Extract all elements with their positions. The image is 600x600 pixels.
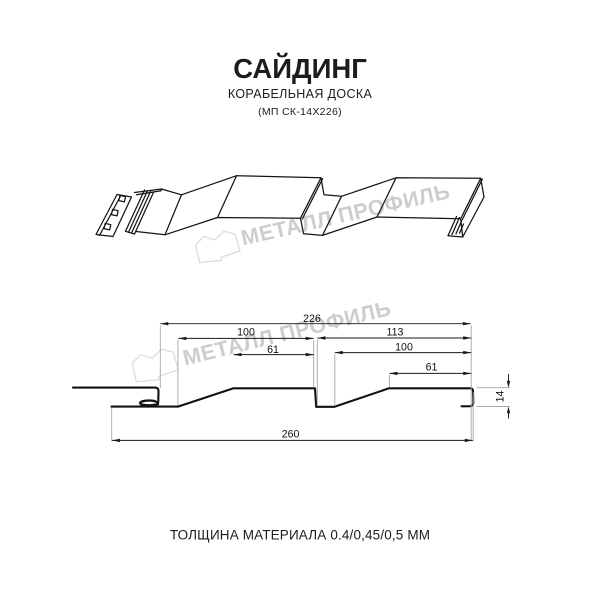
svg-text:МЕТАЛЛ ПРОФИЛЬ: МЕТАЛЛ ПРОФИЛЬ bbox=[239, 179, 453, 250]
svg-text:61: 61 bbox=[267, 344, 279, 356]
svg-text:260: 260 bbox=[282, 429, 300, 441]
svg-text:61: 61 bbox=[426, 362, 438, 374]
svg-text:226: 226 bbox=[303, 313, 321, 325]
svg-text:(МП СК-14Х226): (МП СК-14Х226) bbox=[258, 106, 342, 118]
svg-text:САЙДИНГ: САЙДИНГ bbox=[233, 53, 367, 84]
svg-text:14: 14 bbox=[494, 391, 506, 403]
svg-text:113: 113 bbox=[387, 327, 404, 339]
svg-text:МЕТАЛЛ ПРОФИЛЬ: МЕТАЛЛ ПРОФИЛЬ bbox=[180, 296, 393, 370]
svg-text:100: 100 bbox=[237, 327, 255, 339]
svg-text:100: 100 bbox=[395, 341, 413, 353]
svg-text:ТОЛЩИНА МАТЕРИАЛА 0.4/0,45/0,5: ТОЛЩИНА МАТЕРИАЛА 0.4/0,45/0,5 ММ bbox=[170, 528, 430, 543]
svg-text:КОРАБЕЛЬНАЯ ДОСКА: КОРАБЕЛЬНАЯ ДОСКА bbox=[228, 87, 373, 101]
